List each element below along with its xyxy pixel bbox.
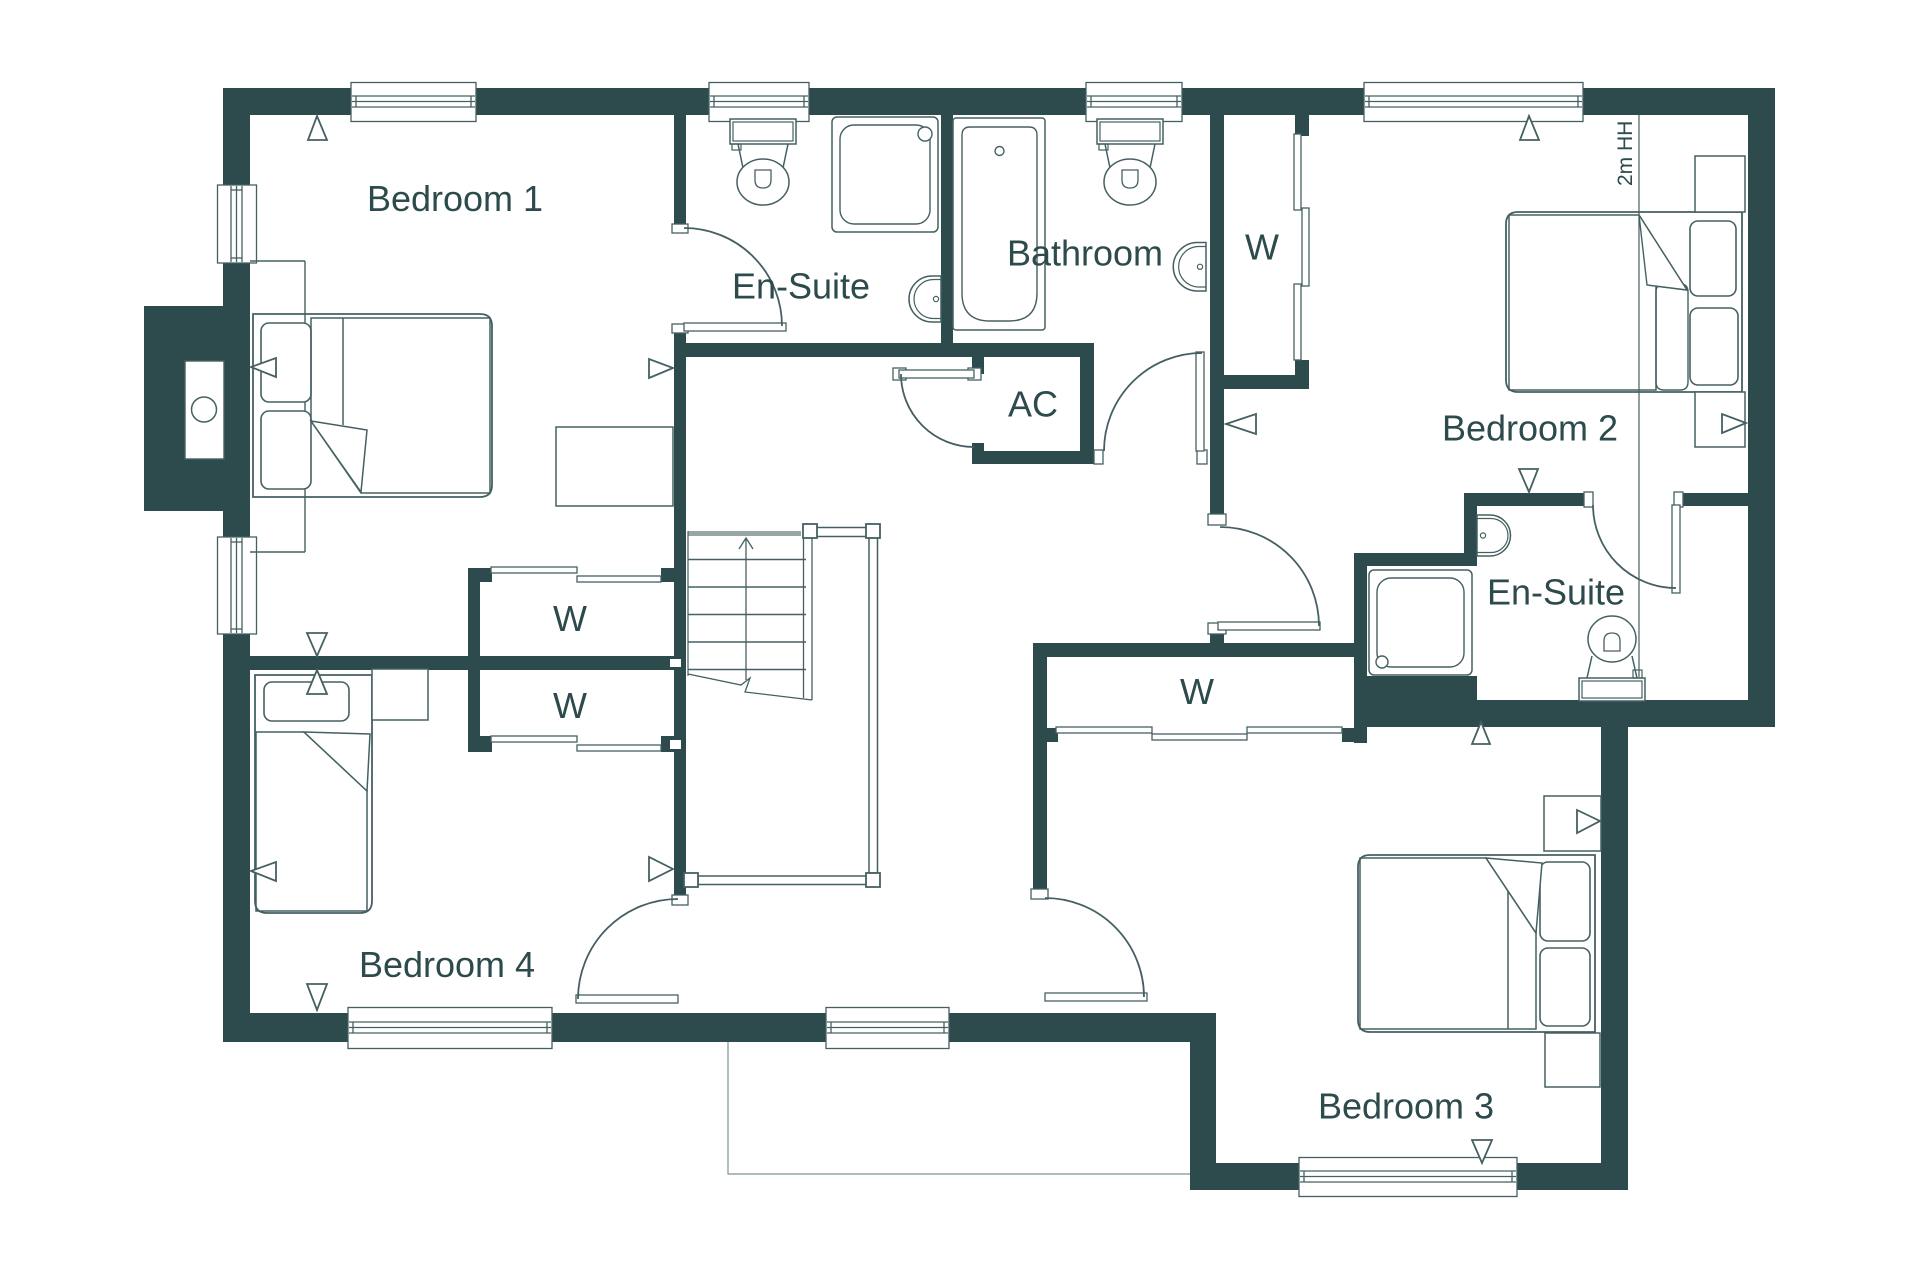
svg-text:Bedroom 2: Bedroom 2: [1442, 408, 1618, 449]
svg-text:Bedroom 4: Bedroom 4: [359, 944, 535, 985]
svg-text:AC: AC: [1008, 384, 1058, 425]
svg-text:Bedroom 3: Bedroom 3: [1318, 1086, 1494, 1127]
svg-text:En-Suite: En-Suite: [1487, 572, 1625, 613]
svg-text:2m HH: 2m HH: [1614, 121, 1637, 186]
svg-text:Bathroom: Bathroom: [1007, 233, 1163, 274]
svg-text:W: W: [553, 685, 587, 726]
svg-text:En-Suite: En-Suite: [732, 266, 870, 307]
svg-text:W: W: [1245, 227, 1279, 268]
svg-text:W: W: [1180, 671, 1214, 712]
svg-text:W: W: [553, 598, 587, 639]
svg-text:Bedroom 1: Bedroom 1: [367, 178, 543, 219]
